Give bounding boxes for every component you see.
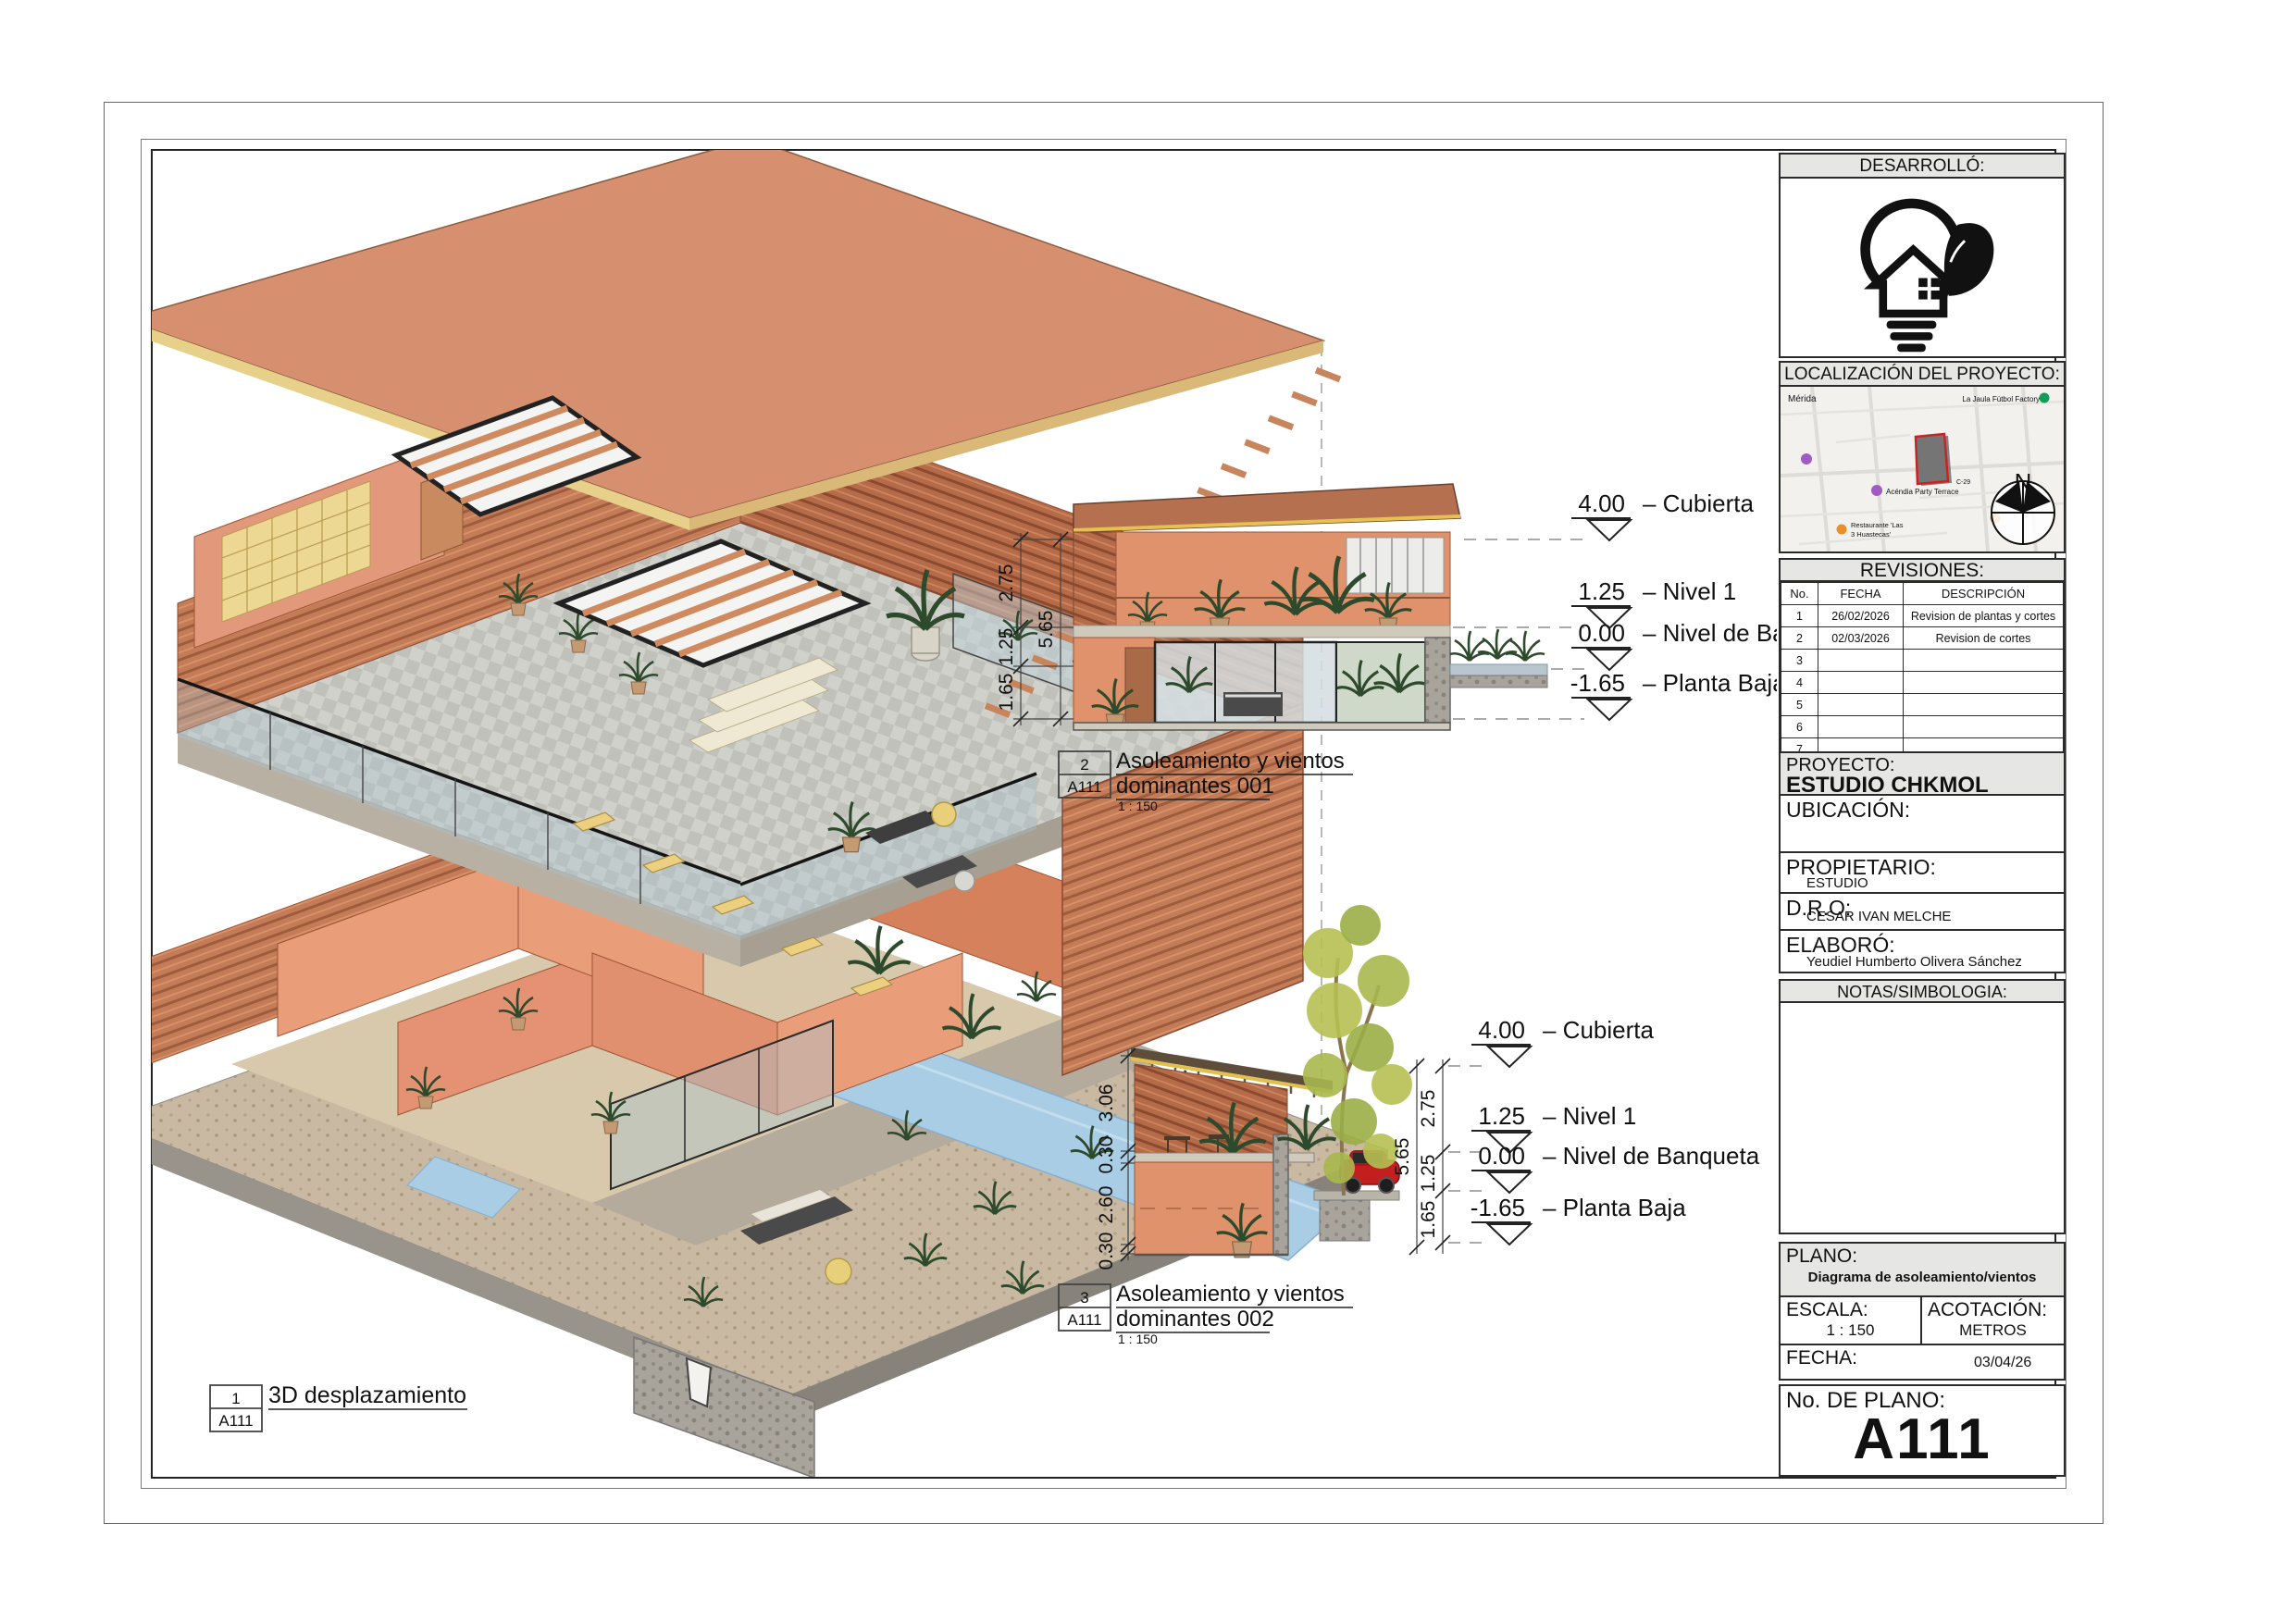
dim-label: 3.06 <box>1096 1084 1117 1122</box>
view-title: Asoleamiento y vientos <box>1116 749 1345 774</box>
svg-text:– Nivel 1: – Nivel 1 <box>1543 1102 1636 1130</box>
rev-col-no: No. <box>1781 583 1818 605</box>
drawing-area: 2.75 1.25 1.65 5.65 4.00 – Cubierta 1.25… <box>152 150 1777 1477</box>
localizacion-label: LOCALIZACIÓN DEL PROYECTO: <box>1784 365 2060 384</box>
titleblock-revisiones-table: No. FECHA DESCRIPCIÓN 1 26/02/2026 Revis… <box>1779 580 2066 753</box>
titleblock-escala-acotacion: ESCALA: 1 : 150 ACOTACIÓN: METROS <box>1779 1295 2066 1345</box>
titleblock-fecha: FECHA: 03/04/26 <box>1779 1344 2066 1381</box>
callout-sheet: A111 <box>1067 1311 1101 1329</box>
dim-label: 2.75 <box>996 564 1017 602</box>
titleblock-proyecto: PROYECTO: ESTUDIO CHKMOL <box>1779 751 2066 796</box>
map-poi-label: La Jaula Fútbol Factory <box>1962 395 2040 403</box>
svg-text:0.00: 0.00 <box>1578 619 1625 647</box>
callout-sheet: A111 <box>1067 778 1101 796</box>
revision-row: 5 <box>1781 694 2064 716</box>
level-marker: 0.00 – Nivel de Banqueta <box>1571 619 1777 670</box>
acotacion-label: ACOTACIÓN: <box>1922 1297 2064 1321</box>
revision-row: 1 26/02/2026 Revision de plantas y corte… <box>1781 605 2064 627</box>
svg-text:1.25: 1.25 <box>1478 1102 1525 1130</box>
map-poi-label: Restaurante 'Las <box>1851 521 1904 529</box>
dim-label: 2.75 <box>1418 1090 1439 1128</box>
view-3d-exploded: 2.75 1.25 1.65 5.65 4.00 – Cubierta 1.25… <box>152 150 1777 1477</box>
dim-label: 5.65 <box>1036 611 1057 649</box>
map-poi-label: 3 Huastecas' <box>1851 530 1892 539</box>
map-street-label: C-29 <box>1956 479 1970 486</box>
svg-text:-1.65: -1.65 <box>1471 1194 1525 1221</box>
notas-label: NOTAS/SIMBOLOGIA: <box>1837 983 2007 1001</box>
dim-label: 0.30 <box>1096 1136 1117 1174</box>
escala-label: ESCALA: <box>1781 1297 1920 1321</box>
dro-value: CESAR IVAN MELCHE <box>1781 909 2064 924</box>
level-marker: 4.00 – Cubierta <box>1571 489 1754 540</box>
ubicacion-label: UBICACIÓN: <box>1781 796 2064 823</box>
desarrollo-label: DESARROLLÓ: <box>1859 156 1984 176</box>
titleblock-ubicacion: UBICACIÓN: <box>1779 794 2066 853</box>
plano-label: PLANO: <box>1781 1244 2064 1268</box>
titleblock-propietario: PROPIETARIO: ESTUDIO <box>1779 851 2066 894</box>
callout-number: 1 <box>231 1390 240 1407</box>
sheet-number: A111 <box>1781 1406 2064 1472</box>
revision-row: 3 <box>1781 650 2064 672</box>
titleblock-notas-header: NOTAS/SIMBOLOGIA: <box>1779 979 2066 1003</box>
map-marker-purple <box>1871 485 1882 496</box>
proyecto-value: ESTUDIO CHKMOL <box>1781 773 2064 796</box>
revisiones-label: REVISIONES: <box>1860 560 1984 581</box>
dim-label: 2.60 <box>1096 1186 1117 1224</box>
view-title: dominantes 002 <box>1116 1307 1274 1332</box>
level-marker: -1.65 – Planta Baja <box>1471 1194 1686 1245</box>
acotacion-value: METROS <box>1922 1321 2064 1340</box>
svg-text:4.00: 4.00 <box>1478 1016 1525 1044</box>
callout-3d-view: 1 A111 3D desplazamiento <box>210 1382 467 1431</box>
svg-text:– Nivel de Banqueta: – Nivel de Banqueta <box>1543 1142 1760 1170</box>
callout-number: 3 <box>1080 1289 1088 1307</box>
company-logo-icon <box>1781 179 2064 356</box>
callout-number: 2 <box>1080 756 1088 774</box>
fecha-value: 03/04/26 <box>1974 1355 2031 1371</box>
titleblock-map-box: Mérida La Jaula Fútbol Factory Acéndia P… <box>1779 385 2066 553</box>
callout-sheet: A111 <box>218 1412 253 1430</box>
titleblock-elaboro: ELABORÓ: Yeudiel Humberto Olivera Sánche… <box>1779 929 2066 973</box>
escala-value: 1 : 150 <box>1781 1321 1920 1340</box>
view-title: Asoleamiento y vientos <box>1116 1282 1345 1307</box>
view-title: dominantes 001 <box>1116 774 1274 799</box>
dim-label: 5.65 <box>1392 1138 1413 1176</box>
location-map: Mérida La Jaula Fútbol Factory Acéndia P… <box>1781 387 2064 551</box>
level-marker: -1.65 – Planta Baja <box>1570 669 1777 720</box>
view-scale: 1 : 150 <box>1118 1332 1158 1346</box>
view-section-001 <box>1025 484 1584 730</box>
plano-value: Diagrama de asoleamiento/vientos <box>1781 1270 2064 1285</box>
map-poi-label: Acéndia Party Terrace <box>1886 488 1959 496</box>
svg-text:4.00: 4.00 <box>1578 489 1625 517</box>
dim-label: 1.25 <box>1418 1155 1439 1193</box>
section2-levels: 4.00 – Cubierta 1.25 – Nivel 1 0.00 – Ni… <box>1471 1016 1760 1245</box>
titleblock-num-plano: No. DE PLANO: A111 <box>1779 1384 2066 1477</box>
svg-text:0.00: 0.00 <box>1478 1142 1525 1170</box>
drawing-sheet: 2.75 1.25 1.65 5.65 4.00 – Cubierta 1.25… <box>0 0 2296 1623</box>
svg-text:– Planta Baja: – Planta Baja <box>1643 669 1777 697</box>
titleblock-localizacion-header: LOCALIZACIÓN DEL PROYECTO: <box>1779 361 2066 387</box>
level-marker: 4.00 – Cubierta <box>1471 1016 1654 1067</box>
titleblock-plano: PLANO: Diagrama de asoleamiento/vientos <box>1779 1242 2066 1297</box>
dim-label: 1.25 <box>996 628 1017 666</box>
svg-text:N: N <box>2015 468 2032 496</box>
elaboro-value: Yeudiel Humberto Olivera Sánchez <box>1781 954 2064 970</box>
map-marker-orange <box>1837 525 1847 535</box>
svg-text:– Nivel 1: – Nivel 1 <box>1643 577 1736 605</box>
section1-levels: 4.00 – Cubierta 1.25 – Nivel 1 0.00 – Ni… <box>1570 489 1777 720</box>
titleblock-desarrollo-header: DESARROLLÓ: <box>1779 153 2066 179</box>
dim-label: 1.65 <box>996 674 1017 712</box>
level-marker: 0.00 – Nivel de Banqueta <box>1471 1142 1760 1193</box>
revision-header-row: No. FECHA DESCRIPCIÓN <box>1781 583 2064 605</box>
rev-col-descripcion: DESCRIPCIÓN <box>1904 583 2064 605</box>
revision-row: 4 <box>1781 672 2064 694</box>
view-title: 3D desplazamiento <box>268 1382 466 1408</box>
map-city-label: Mérida <box>1788 394 1817 404</box>
svg-text:– Planta Baja: – Planta Baja <box>1543 1194 1686 1221</box>
svg-text:– Cubierta: – Cubierta <box>1643 489 1754 517</box>
dim-label: 0.30 <box>1096 1233 1117 1270</box>
site-parcel <box>1916 434 1948 484</box>
view-scale: 1 : 150 <box>1118 799 1158 813</box>
svg-text:-1.65: -1.65 <box>1570 669 1625 697</box>
svg-text:1.25: 1.25 <box>1578 577 1625 605</box>
titleblock-dro: D.R.O: CESAR IVAN MELCHE <box>1779 892 2066 931</box>
revision-row: 2 02/03/2026 Revision de cortes <box>1781 627 2064 650</box>
dim-label: 1.65 <box>1418 1201 1439 1239</box>
rev-col-fecha: FECHA <box>1818 583 1904 605</box>
titleblock-revisiones-header: REVISIONES: <box>1779 558 2066 582</box>
map-marker-green <box>2040 393 2050 403</box>
svg-text:– Cubierta: – Cubierta <box>1543 1016 1654 1044</box>
titleblock-notas-box <box>1779 1001 2066 1234</box>
round-table <box>825 1258 851 1284</box>
titleblock-logo-box <box>1779 177 2066 358</box>
svg-text:– Nivel de Banqueta: – Nivel de Banqueta <box>1643 619 1777 647</box>
fecha-label: FECHA: <box>1781 1345 1863 1369</box>
revision-row: 6 <box>1781 716 2064 738</box>
map-marker-purple <box>1801 453 1812 465</box>
